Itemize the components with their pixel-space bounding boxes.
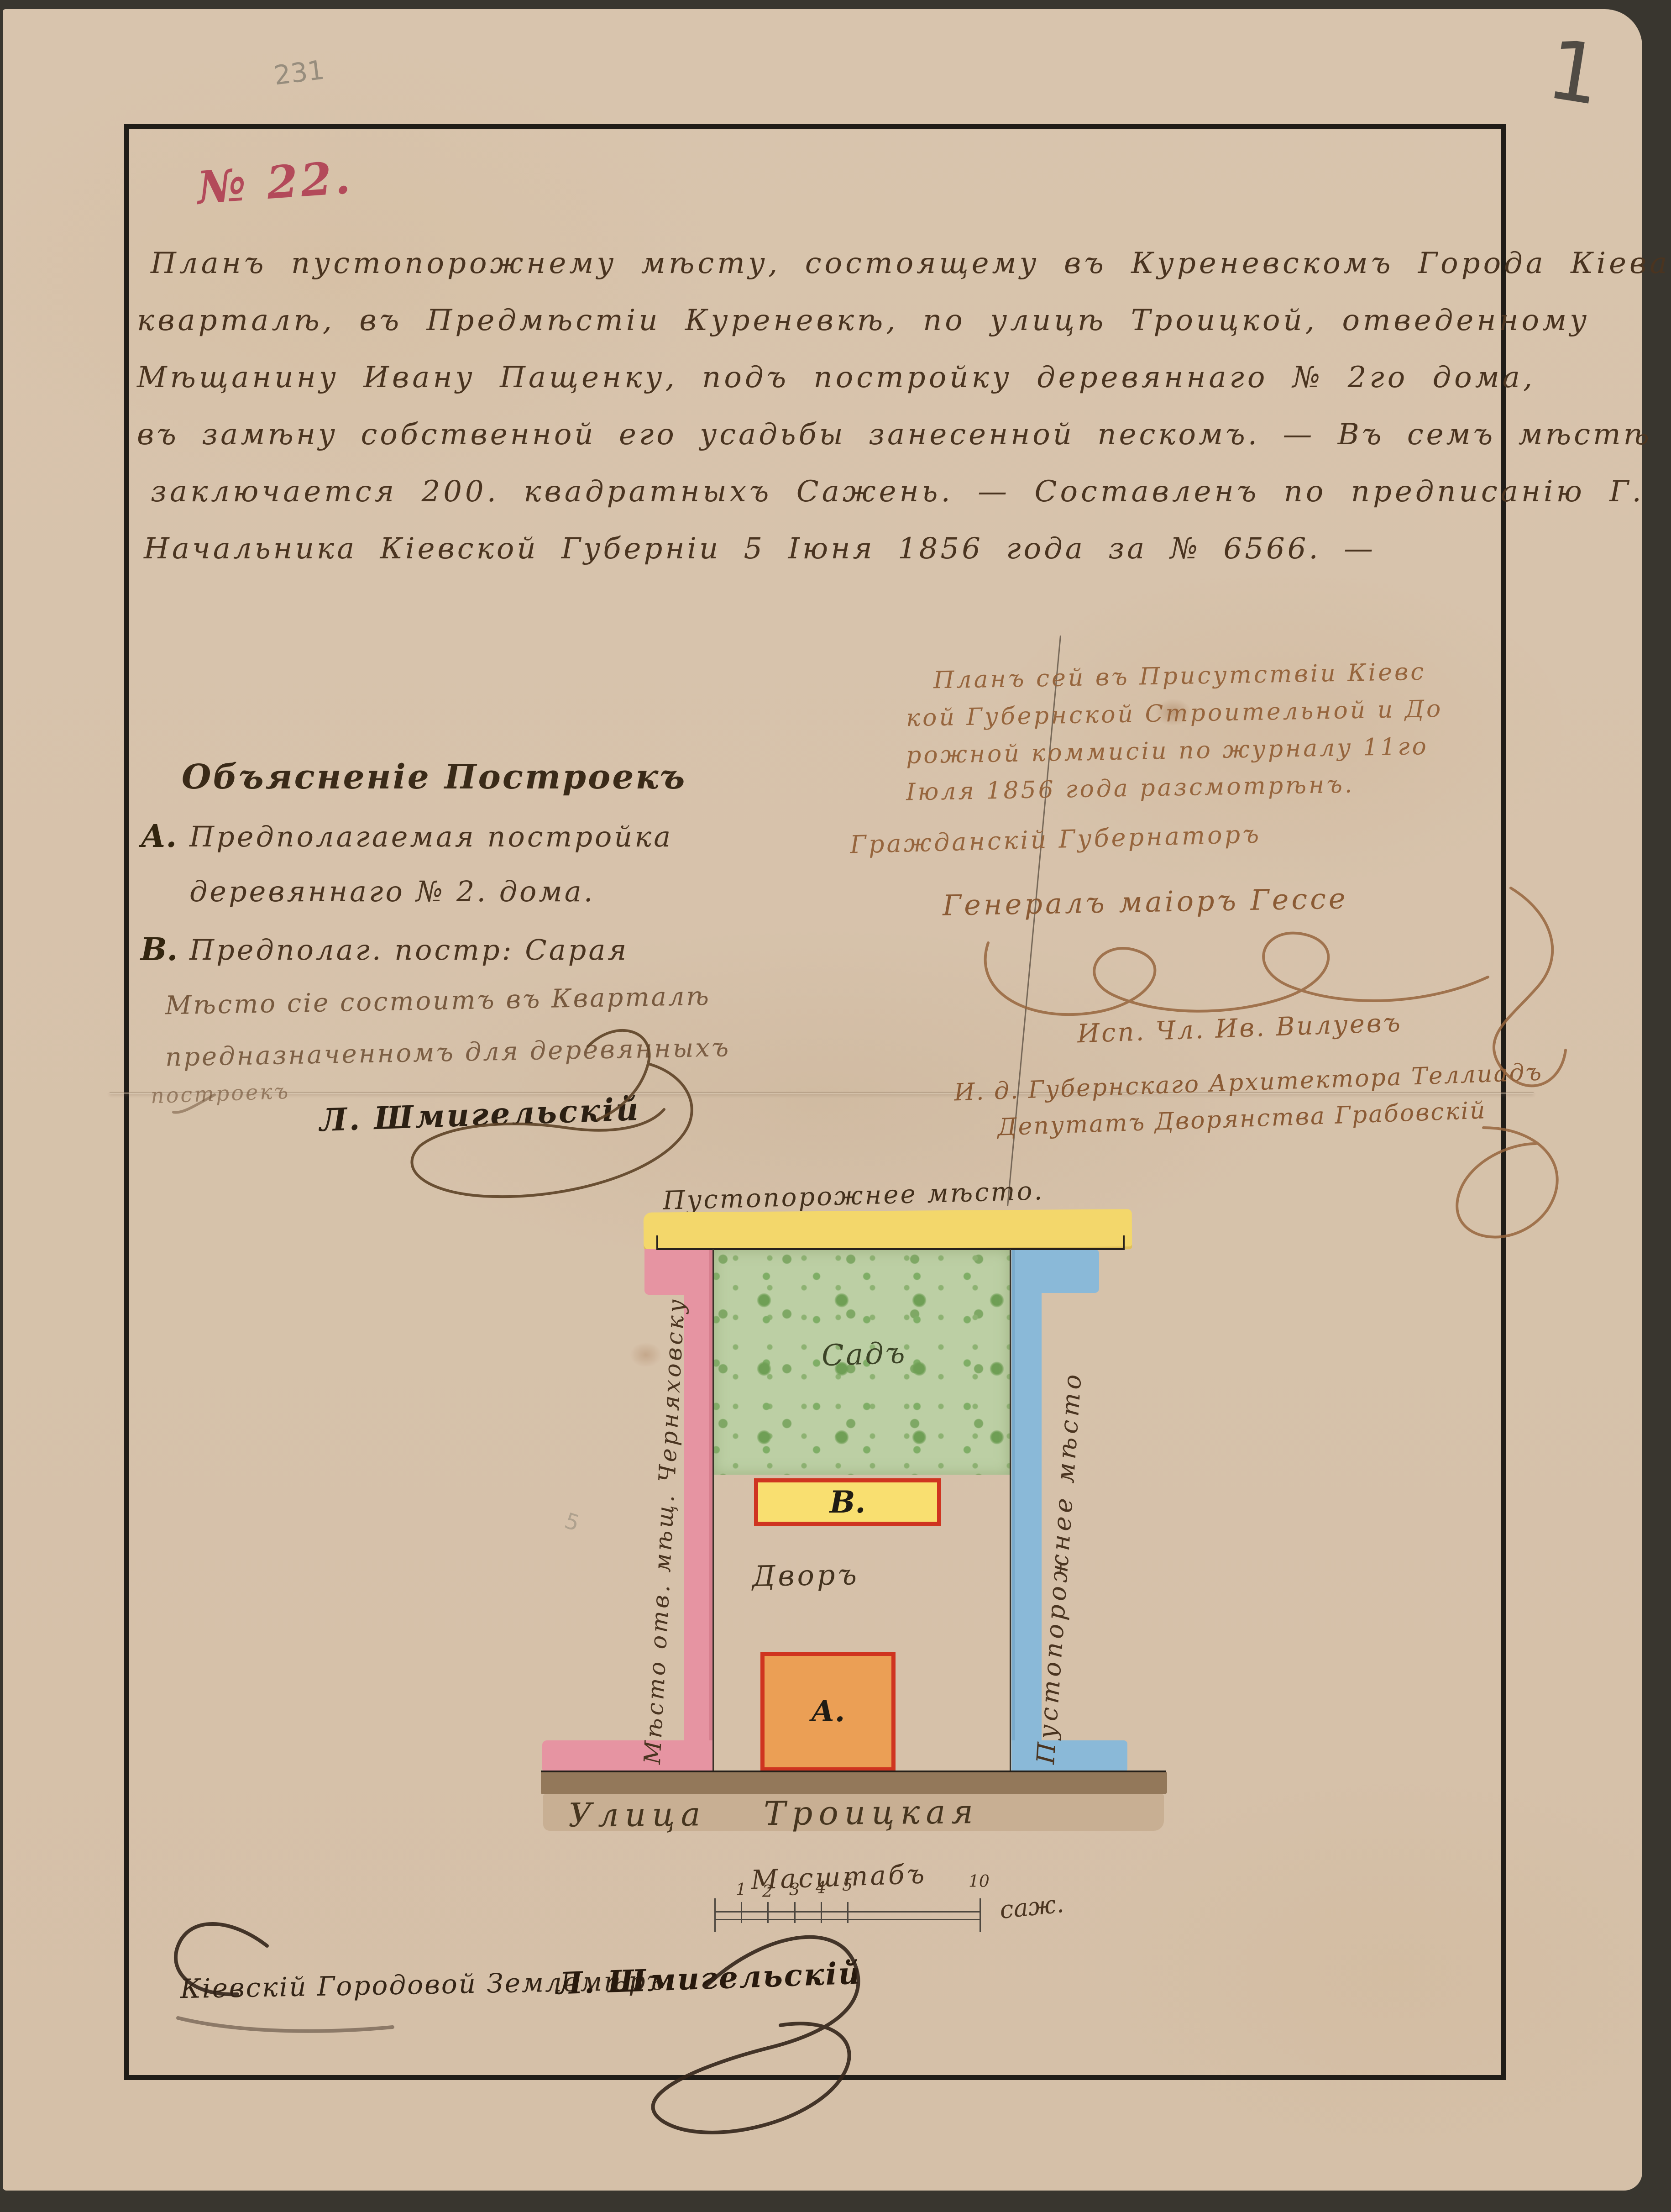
- scale-bar-endtick: [980, 1898, 981, 1932]
- scale-tick-label: 1: [736, 1882, 746, 1898]
- scale-tick-label: 3: [789, 1882, 800, 1898]
- doc-number: № 22.: [196, 155, 354, 211]
- body-line: Начальника Кіевской Губерніи 5 Іюня 1856…: [144, 534, 1376, 563]
- legend-item-b-text: Предполаг. постр: Сарая: [189, 936, 629, 964]
- plot-boundary-tick-left: [656, 1235, 658, 1250]
- scale-bar-tick: [741, 1902, 742, 1923]
- building-b-label: В.: [830, 1487, 866, 1517]
- garden-label: Садъ: [821, 1339, 907, 1371]
- scale-bar-tick: [847, 1902, 849, 1923]
- legend-item-a-text2: деревяннаго № 2. дома.: [189, 877, 595, 906]
- scale-title: Масштабъ: [750, 1860, 927, 1893]
- legend-item-a-key: А.: [141, 821, 177, 852]
- archival-pencil-number: 231: [272, 56, 326, 89]
- scale-bar-tick: [767, 1902, 769, 1923]
- scale-tick-label: 4: [816, 1880, 826, 1897]
- street-label: Улица Троицкая: [568, 1795, 980, 1832]
- building-a: А.: [760, 1652, 896, 1771]
- plan-north-band: [644, 1209, 1132, 1252]
- scale-bar-tick: [821, 1902, 822, 1923]
- legend-item-b-key: В.: [141, 934, 178, 965]
- governor-signature: Генералъ маіоръ Гессе: [943, 884, 1349, 919]
- building-a-label: А.: [811, 1697, 845, 1726]
- body-line: въ замѣну собственной его усадьбы занесе…: [137, 420, 1652, 449]
- scanned-document: 231 1 5 № 22. Планъ пустопорожнему мѣсту…: [0, 0, 1671, 2212]
- scale-tick-label: 10: [969, 1874, 990, 1890]
- paper-stain: [630, 1342, 662, 1367]
- body-line: Мѣщанину Ивану Пащенку, подъ постройку д…: [137, 363, 1535, 392]
- plan-east-strip-flange: [1011, 1740, 1127, 1771]
- body-line: заключается 200. квадратныхъ Сажень. — С…: [151, 477, 1645, 506]
- scale-unit: саж.: [999, 1891, 1065, 1923]
- plan-west-strip-flange: [542, 1740, 713, 1771]
- legend-note-line: построекъ: [150, 1081, 290, 1107]
- building-b: В.: [754, 1478, 941, 1526]
- plot-boundary-tick-right: [1123, 1235, 1125, 1250]
- street-band-dark: [541, 1772, 1167, 1794]
- scale-tick-label: 5: [842, 1877, 853, 1894]
- body-line: Планъ пустопорожнему мѣсту, состоящему в…: [151, 249, 1670, 278]
- legend-item-a-text: Предполагаемая постройка: [189, 823, 673, 851]
- body-line: кварталѣ, въ Предмѣстіи Куреневкѣ, по ул…: [137, 306, 1590, 335]
- yard-label: Дворъ: [752, 1560, 859, 1591]
- legend-heading: Объясненіе Построекъ: [182, 760, 686, 794]
- scale-bar-endtick: [714, 1898, 716, 1932]
- plot-boundary-right: [1010, 1249, 1011, 1771]
- scale-tick-label: 2: [762, 1884, 773, 1900]
- scale-bar-tick: [794, 1902, 796, 1923]
